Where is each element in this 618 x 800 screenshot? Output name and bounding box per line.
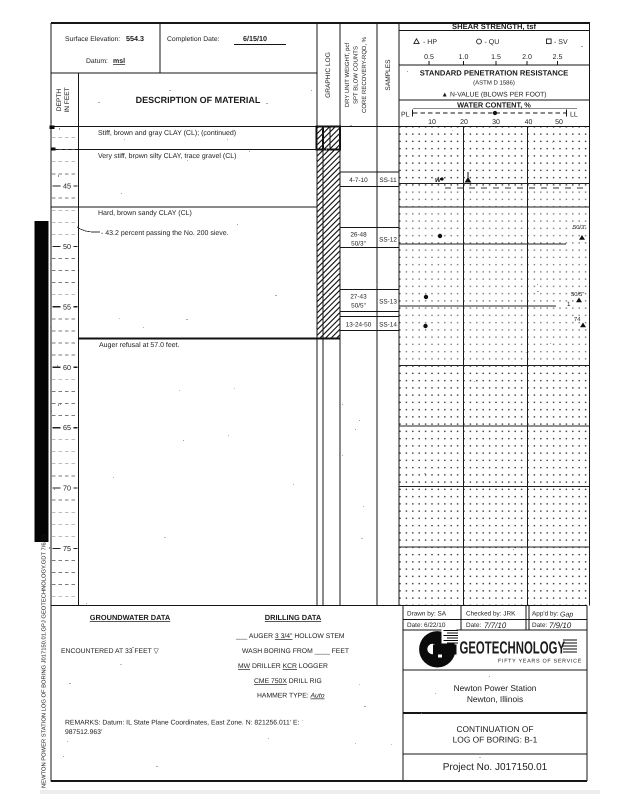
svg-text:- 43.2 percent passing the No.: - 43.2 percent passing the No. 200 sieve… xyxy=(101,229,229,237)
svg-text:ENCOUNTERED AT 33 FEET ▽: ENCOUNTERED AT 33 FEET ▽ xyxy=(61,648,160,655)
svg-text:Auger refusal at 57.0 feet.: Auger refusal at 57.0 feet. xyxy=(99,341,180,349)
svg-text:1.0: 1.0 xyxy=(459,54,469,61)
svg-text:HAMMER TYPE: Auto: HAMMER TYPE: Auto xyxy=(257,693,325,700)
svg-text:60: 60 xyxy=(63,363,71,372)
svg-text:40: 40 xyxy=(525,119,533,126)
svg-text:PL: PL xyxy=(401,112,410,119)
svg-text:DESCRIPTION OF MATERIAL: DESCRIPTION OF MATERIAL xyxy=(136,95,261,105)
svg-text:Gap: Gap xyxy=(560,612,573,619)
svg-text:2.5: 2.5 xyxy=(553,54,563,61)
svg-text:SPT BLOW COUNTS: SPT BLOW COUNTS xyxy=(353,46,360,104)
svg-text:IN FEET: IN FEET xyxy=(64,87,71,112)
svg-text:DRY UNIT WEIGHT, pcf: DRY UNIT WEIGHT, pcf xyxy=(344,43,351,108)
svg-text:SHEAR STRENGTH, tsf: SHEAR STRENGTH, tsf xyxy=(452,22,536,31)
svg-text:SS-11: SS-11 xyxy=(379,177,397,184)
svg-text:45: 45 xyxy=(63,182,71,191)
svg-text:27-43: 27-43 xyxy=(350,294,367,301)
svg-text:75: 75 xyxy=(63,544,71,553)
svg-text:SS-14: SS-14 xyxy=(379,322,397,329)
svg-text:Stiff, brown and gray CLAY (C: Stiff, brown and gray CLAY (CL); (contin… xyxy=(98,129,236,137)
svg-text:50: 50 xyxy=(555,119,563,126)
svg-text:Date: 6/22/10: Date: 6/22/10 xyxy=(407,622,446,629)
svg-text:Datum:: Datum: xyxy=(86,58,108,65)
svg-text:WATER CONTENT, %: WATER CONTENT, % xyxy=(457,101,531,110)
svg-text:6/15/10: 6/15/10 xyxy=(243,34,267,43)
svg-text:GROUNDWATER DATA: GROUNDWATER DATA xyxy=(90,613,171,622)
svg-text:LL: LL xyxy=(570,112,578,119)
svg-text:50: 50 xyxy=(63,242,71,251)
svg-text:50/5": 50/5" xyxy=(351,303,366,310)
svg-text:- SV: - SV xyxy=(554,39,568,46)
svg-text:msl: msl xyxy=(113,57,125,65)
svg-text:NEWTON POWER STATION LOG OF BO: NEWTON POWER STATION LOG OF BORING J0171… xyxy=(41,534,48,788)
svg-text:Checked by: JRK: Checked by: JRK xyxy=(466,611,516,618)
svg-text:30: 30 xyxy=(492,119,500,126)
svg-text:Newton, Illinois: Newton, Illinois xyxy=(467,694,523,704)
svg-text:Newton Power Station: Newton Power Station xyxy=(454,683,537,693)
svg-text:70: 70 xyxy=(63,484,71,493)
svg-text:▲ N-VALUE (BLOWS PER FOOT): ▲ N-VALUE (BLOWS PER FOOT) xyxy=(441,92,546,99)
svg-text:13-24-50: 13-24-50 xyxy=(346,322,372,329)
svg-text:20: 20 xyxy=(460,119,468,126)
svg-text:26-48: 26-48 xyxy=(350,232,367,239)
svg-text:1.5: 1.5 xyxy=(491,54,501,61)
svg-text:10: 10 xyxy=(428,119,436,126)
svg-text:MW DRILLER KCR LOGGER: MW DRILLER KCR LOGGER xyxy=(238,663,328,670)
svg-text:7/7/10: 7/7/10 xyxy=(484,621,507,630)
svg-text:554.3: 554.3 xyxy=(126,34,144,43)
svg-text:1: 1 xyxy=(567,301,571,308)
svg-text:Project No. J017150.01: Project No. J017150.01 xyxy=(443,762,548,773)
svg-text:___ AUGER 3 3/4" HOLLOW STEM: ___ AUGER 3 3/4" HOLLOW STEM xyxy=(235,633,345,640)
svg-text:65: 65 xyxy=(63,423,71,432)
svg-text:Very stiff, brown silty CLAY,: Very stiff, brown silty CLAY, trace grav… xyxy=(98,152,237,160)
svg-text:CME 750X DRILL RIG: CME 750X DRILL RIG xyxy=(254,678,322,685)
svg-text:Completion Date:: Completion Date: xyxy=(167,36,220,43)
svg-text:WASH BORING FROM ____ FEET: WASH BORING FROM ____ FEET xyxy=(242,648,349,655)
svg-text:50/3": 50/3" xyxy=(573,224,586,231)
svg-text:REMARKS: Datum: IL State Pla: REMARKS: Datum: IL State Plane Coordinat… xyxy=(65,720,300,727)
svg-text:Hard, brown sandy CLAY (CL): Hard, brown sandy CLAY (CL) xyxy=(98,209,192,217)
svg-text:FIFTY YEARS OF SERVICE: FIFTY YEARS OF SERVICE xyxy=(498,659,582,665)
svg-text:987512.963': 987512.963' xyxy=(65,729,102,736)
svg-text:4-7-10: 4-7-10 xyxy=(349,177,368,184)
svg-text:Date:: Date: xyxy=(466,622,481,629)
svg-text:SS-13: SS-13 xyxy=(379,299,397,306)
svg-text:LOG OF BORING: B-1: LOG OF BORING: B-1 xyxy=(453,735,538,745)
svg-text:CONTINUATION OF: CONTINUATION OF xyxy=(456,724,533,734)
svg-text:0.5: 0.5 xyxy=(424,54,434,61)
svg-text:50/5": 50/5" xyxy=(571,291,584,298)
svg-text:50/3": 50/3" xyxy=(351,241,366,248)
svg-text:55: 55 xyxy=(63,302,71,311)
svg-text:GEOTECHNOLOGY: GEOTECHNOLOGY xyxy=(460,638,566,658)
svg-text:Date:: Date: xyxy=(532,622,547,629)
svg-text:- HP: - HP xyxy=(423,39,437,46)
svg-text:2.0: 2.0 xyxy=(522,54,532,61)
svg-text:GRAPHIC LOG: GRAPHIC LOG xyxy=(325,52,332,98)
svg-text:Surface Elevation:: Surface Elevation: xyxy=(65,36,120,43)
svg-text:Drawn by: SA: Drawn by: SA xyxy=(407,611,447,618)
svg-text:SS-12: SS-12 xyxy=(379,237,397,244)
svg-text:App'd by:: App'd by: xyxy=(532,611,559,618)
svg-text:(ASTM D 1586): (ASTM D 1586) xyxy=(473,80,515,87)
svg-text:74: 74 xyxy=(574,317,581,323)
svg-text:DEPTH: DEPTH xyxy=(56,89,63,112)
svg-text:- QU: - QU xyxy=(485,39,500,46)
svg-text:CORE RECOVERY-RQD, %: CORE RECOVERY-RQD, % xyxy=(361,36,368,113)
svg-text:DRILLING DATA: DRILLING DATA xyxy=(265,613,322,622)
svg-text:SAMPLES: SAMPLES xyxy=(385,59,392,91)
svg-text:STANDARD PENETRATION RESISTANC: STANDARD PENETRATION RESISTANCE xyxy=(420,69,569,78)
svg-text:7/9/10: 7/9/10 xyxy=(549,621,572,630)
